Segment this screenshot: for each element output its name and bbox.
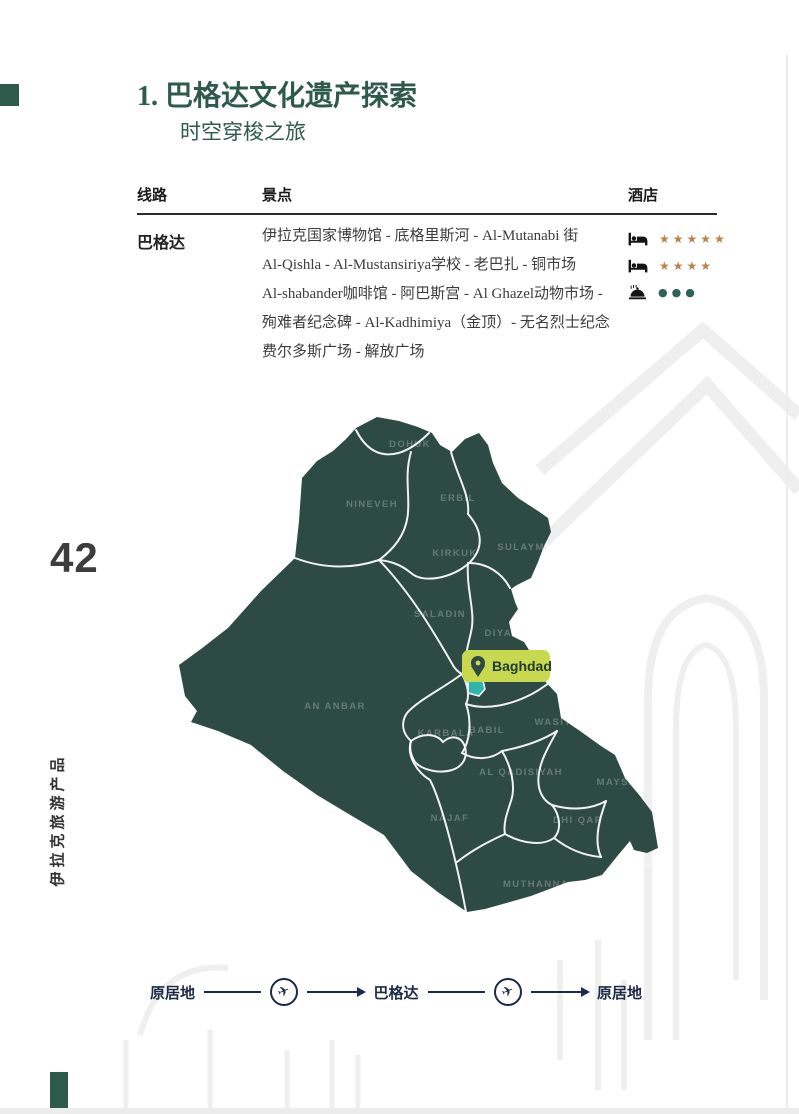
itinerary-origin: 原居地 — [150, 982, 195, 1003]
plane-circle: ✈ — [270, 978, 298, 1006]
svg-text:DHI QAR: DHI QAR — [553, 815, 603, 826]
attraction-line: 殉难者纪念碑 - Al-Kadhimiya（金顶）- 无名烈士纪念 — [262, 309, 637, 338]
country-outline — [179, 417, 658, 912]
bed-icon — [628, 259, 648, 273]
column-header-route: 线路 — [137, 184, 167, 205]
svg-text:AN ANBAR: AN ANBAR — [304, 701, 366, 712]
itinerary-arrow — [307, 991, 364, 993]
svg-text:DIYALA: DIYALA — [485, 628, 528, 639]
page-number: 42 — [50, 534, 99, 582]
bottom-left-accent-bar — [50, 1072, 68, 1108]
plane-circle: ✈ — [494, 978, 522, 1006]
hotel-ratings: ★★★★★ ★★★★ ●●● — [628, 229, 728, 310]
flight-itinerary: 原居地 ✈ 巴格达 ✈ 原居地 — [150, 972, 642, 1012]
svg-text:NINEVEH: NINEVEH — [346, 499, 398, 510]
attractions-list: 伊拉克国家博物馆 - 底格里斯河 - Al-Mutanabi 街 Al-Qish… — [262, 222, 637, 367]
page-subtitle: 时空穿梭之旅 — [180, 116, 306, 146]
location-pin-icon — [476, 661, 481, 666]
attraction-line: Al-shabander咖啡馆 - 阿巴斯宫 - Al Ghazel动物市场 - — [262, 280, 637, 309]
itinerary-line — [428, 991, 485, 993]
page-right-edge — [786, 55, 788, 1108]
svg-text:DOHUK: DOHUK — [389, 439, 431, 450]
svg-text:ERBIL: ERBIL — [440, 493, 476, 504]
brochure-page: 1. 巴格达文化遗产探索 时空穿梭之旅 线路 景点 酒店 巴格达 伊拉克国家博物… — [0, 0, 799, 1114]
svg-text:SALADIN: SALADIN — [414, 609, 466, 620]
table-header-divider — [137, 213, 717, 215]
plane-icon: ✈ — [276, 983, 292, 1000]
column-header-hotel: 酒店 — [628, 184, 658, 205]
itinerary-destination: 巴格达 — [373, 982, 418, 1003]
iraq-map: Baghdad DOHUK NINEVEH ERBIL KIRKUK SULAY… — [170, 400, 700, 940]
page-title: 1. 巴格达文化遗产探索 — [137, 74, 417, 114]
hotel-row: ●●● — [628, 283, 728, 302]
dining-icon — [628, 285, 647, 300]
svg-text:KIRKUK: KIRKUK — [432, 548, 477, 559]
svg-text:MUTHANNA: MUTHANNA — [503, 879, 569, 890]
svg-text:BASRA: BASRA — [621, 861, 662, 872]
route-name: 巴格达 — [137, 229, 185, 253]
page-bottom-edge — [0, 1108, 799, 1114]
svg-text:KARBALA: KARBALA — [418, 728, 475, 739]
attraction-line: 伊拉克国家博物馆 - 底格里斯河 - Al-Mutanabi 街 — [262, 222, 637, 251]
svg-text:MAYSAN: MAYSAN — [597, 777, 646, 788]
svg-text:BABIL: BABIL — [469, 725, 505, 736]
star-rating: ★★★★★ — [659, 232, 728, 246]
attraction-line: Al-Qishla - Al-Mustansiriya学校 - 老巴扎 - 铜市… — [262, 251, 637, 280]
hotel-row: ★★★★★ — [628, 229, 728, 248]
baghdad-marker-badge: Baghdad — [462, 650, 552, 682]
star-rating: ★★★★ — [659, 259, 714, 273]
itinerary-arrow — [531, 991, 588, 993]
svg-text:WASIT: WASIT — [534, 717, 571, 728]
dot-rating: ●●● — [658, 286, 699, 299]
column-header-attractions: 景点 — [262, 184, 292, 205]
plane-icon: ✈ — [500, 983, 516, 1000]
itinerary-return: 原居地 — [597, 982, 642, 1003]
svg-text:AL QADISIYAH: AL QADISIYAH — [479, 767, 563, 778]
vertical-side-label: 伊拉克旅游产品 — [47, 753, 68, 886]
top-left-accent-tab — [0, 84, 19, 106]
baghdad-marker-label: Baghdad — [492, 658, 552, 674]
bed-icon — [628, 232, 648, 246]
attraction-line: 费尔多斯广场 - 解放广场 — [262, 338, 637, 367]
svg-text:NAJAF: NAJAF — [431, 813, 470, 824]
svg-text:SULAYMANIYAH: SULAYMANIYAH — [497, 542, 589, 553]
itinerary-line — [204, 991, 261, 993]
hotel-row: ★★★★ — [628, 256, 728, 275]
